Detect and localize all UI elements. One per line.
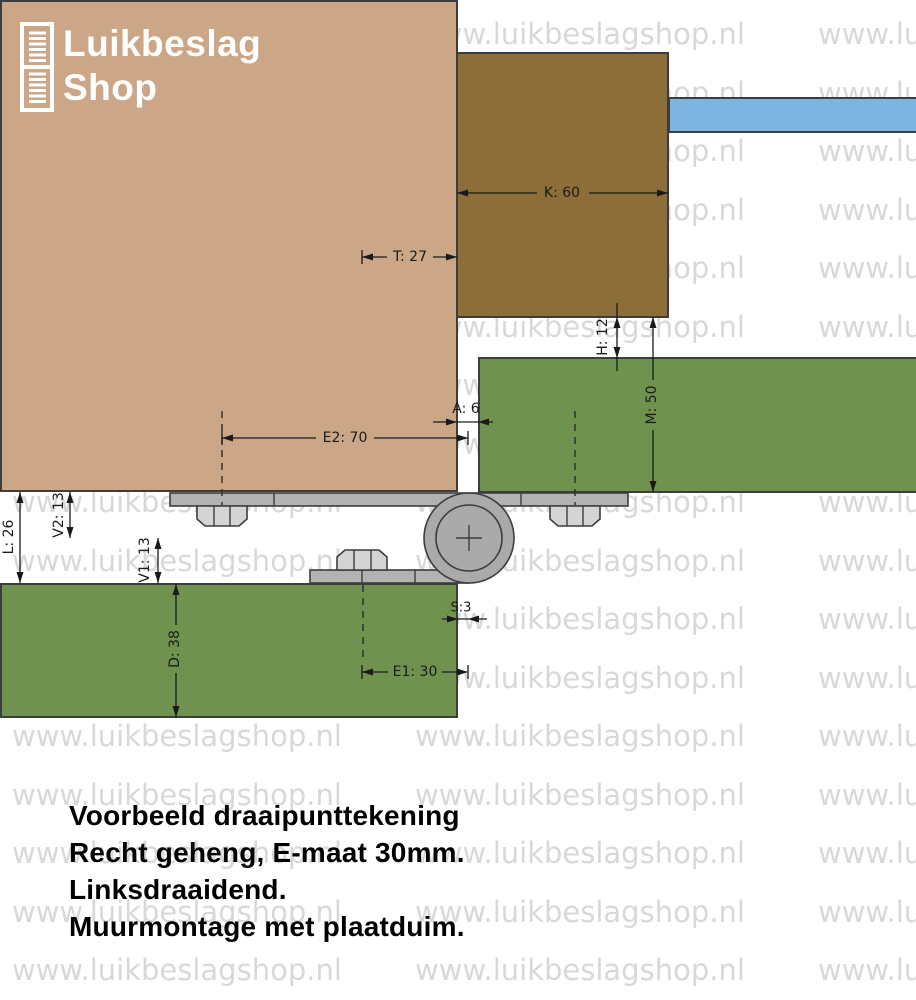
shutter-closed-rect — [479, 358, 916, 492]
caption-line-2: Recht geheng, E-maat 30mm. — [69, 834, 465, 871]
dim-l-label: L: 26 — [1, 520, 17, 555]
dim-e2-label: E2: 70 — [323, 430, 368, 446]
caption: Voorbeeld draaipunttekening Recht geheng… — [69, 797, 465, 945]
dim-t-label: T: 27 — [392, 249, 427, 265]
dim-d-label: D: 38 — [167, 630, 183, 668]
dim-v1: V1: 13 — [137, 537, 162, 583]
dim-v2: V2: 13 — [51, 492, 74, 538]
hinge-top-plate — [170, 493, 628, 506]
hinge-hardware — [170, 493, 628, 583]
brand-name: Luikbeslag Shop — [63, 22, 261, 112]
dim-s-label: S:3 — [451, 601, 472, 616]
dim-a-label: A: 6 — [452, 401, 479, 417]
dim-h-label: H: 12 — [595, 318, 611, 356]
caption-line-1: Voorbeeld draaipunttekening — [69, 797, 465, 834]
glass-bar — [669, 98, 916, 132]
drawing-page: www.luikbeslagshop.nlwww.luikbeslagshop.… — [0, 0, 916, 1000]
bolt-right — [550, 506, 600, 526]
shutter-open-rect — [1, 584, 457, 717]
shutter-icon — [20, 22, 54, 112]
brand-name-line1: Luikbeslag — [63, 22, 261, 66]
dim-l: L: 26 — [1, 492, 24, 583]
brand-name-line2: Shop — [63, 66, 261, 110]
dim-v1-label: V1: 13 — [137, 537, 153, 582]
bolt-bottom — [337, 550, 387, 570]
bolt-left — [197, 506, 247, 526]
dim-v2-label: V2: 13 — [51, 492, 67, 537]
caption-line-4: Muurmontage met plaatduim. — [69, 908, 465, 945]
caption-line-3: Linksdraaidend. — [69, 871, 465, 908]
bolt-facet-lines — [214, 506, 583, 570]
brand-logo: Luikbeslag Shop — [20, 22, 261, 112]
dim-e1-label: E1: 30 — [393, 664, 438, 680]
dim-m-label: M: 50 — [644, 385, 660, 424]
dim-k-label: K: 60 — [544, 185, 580, 201]
